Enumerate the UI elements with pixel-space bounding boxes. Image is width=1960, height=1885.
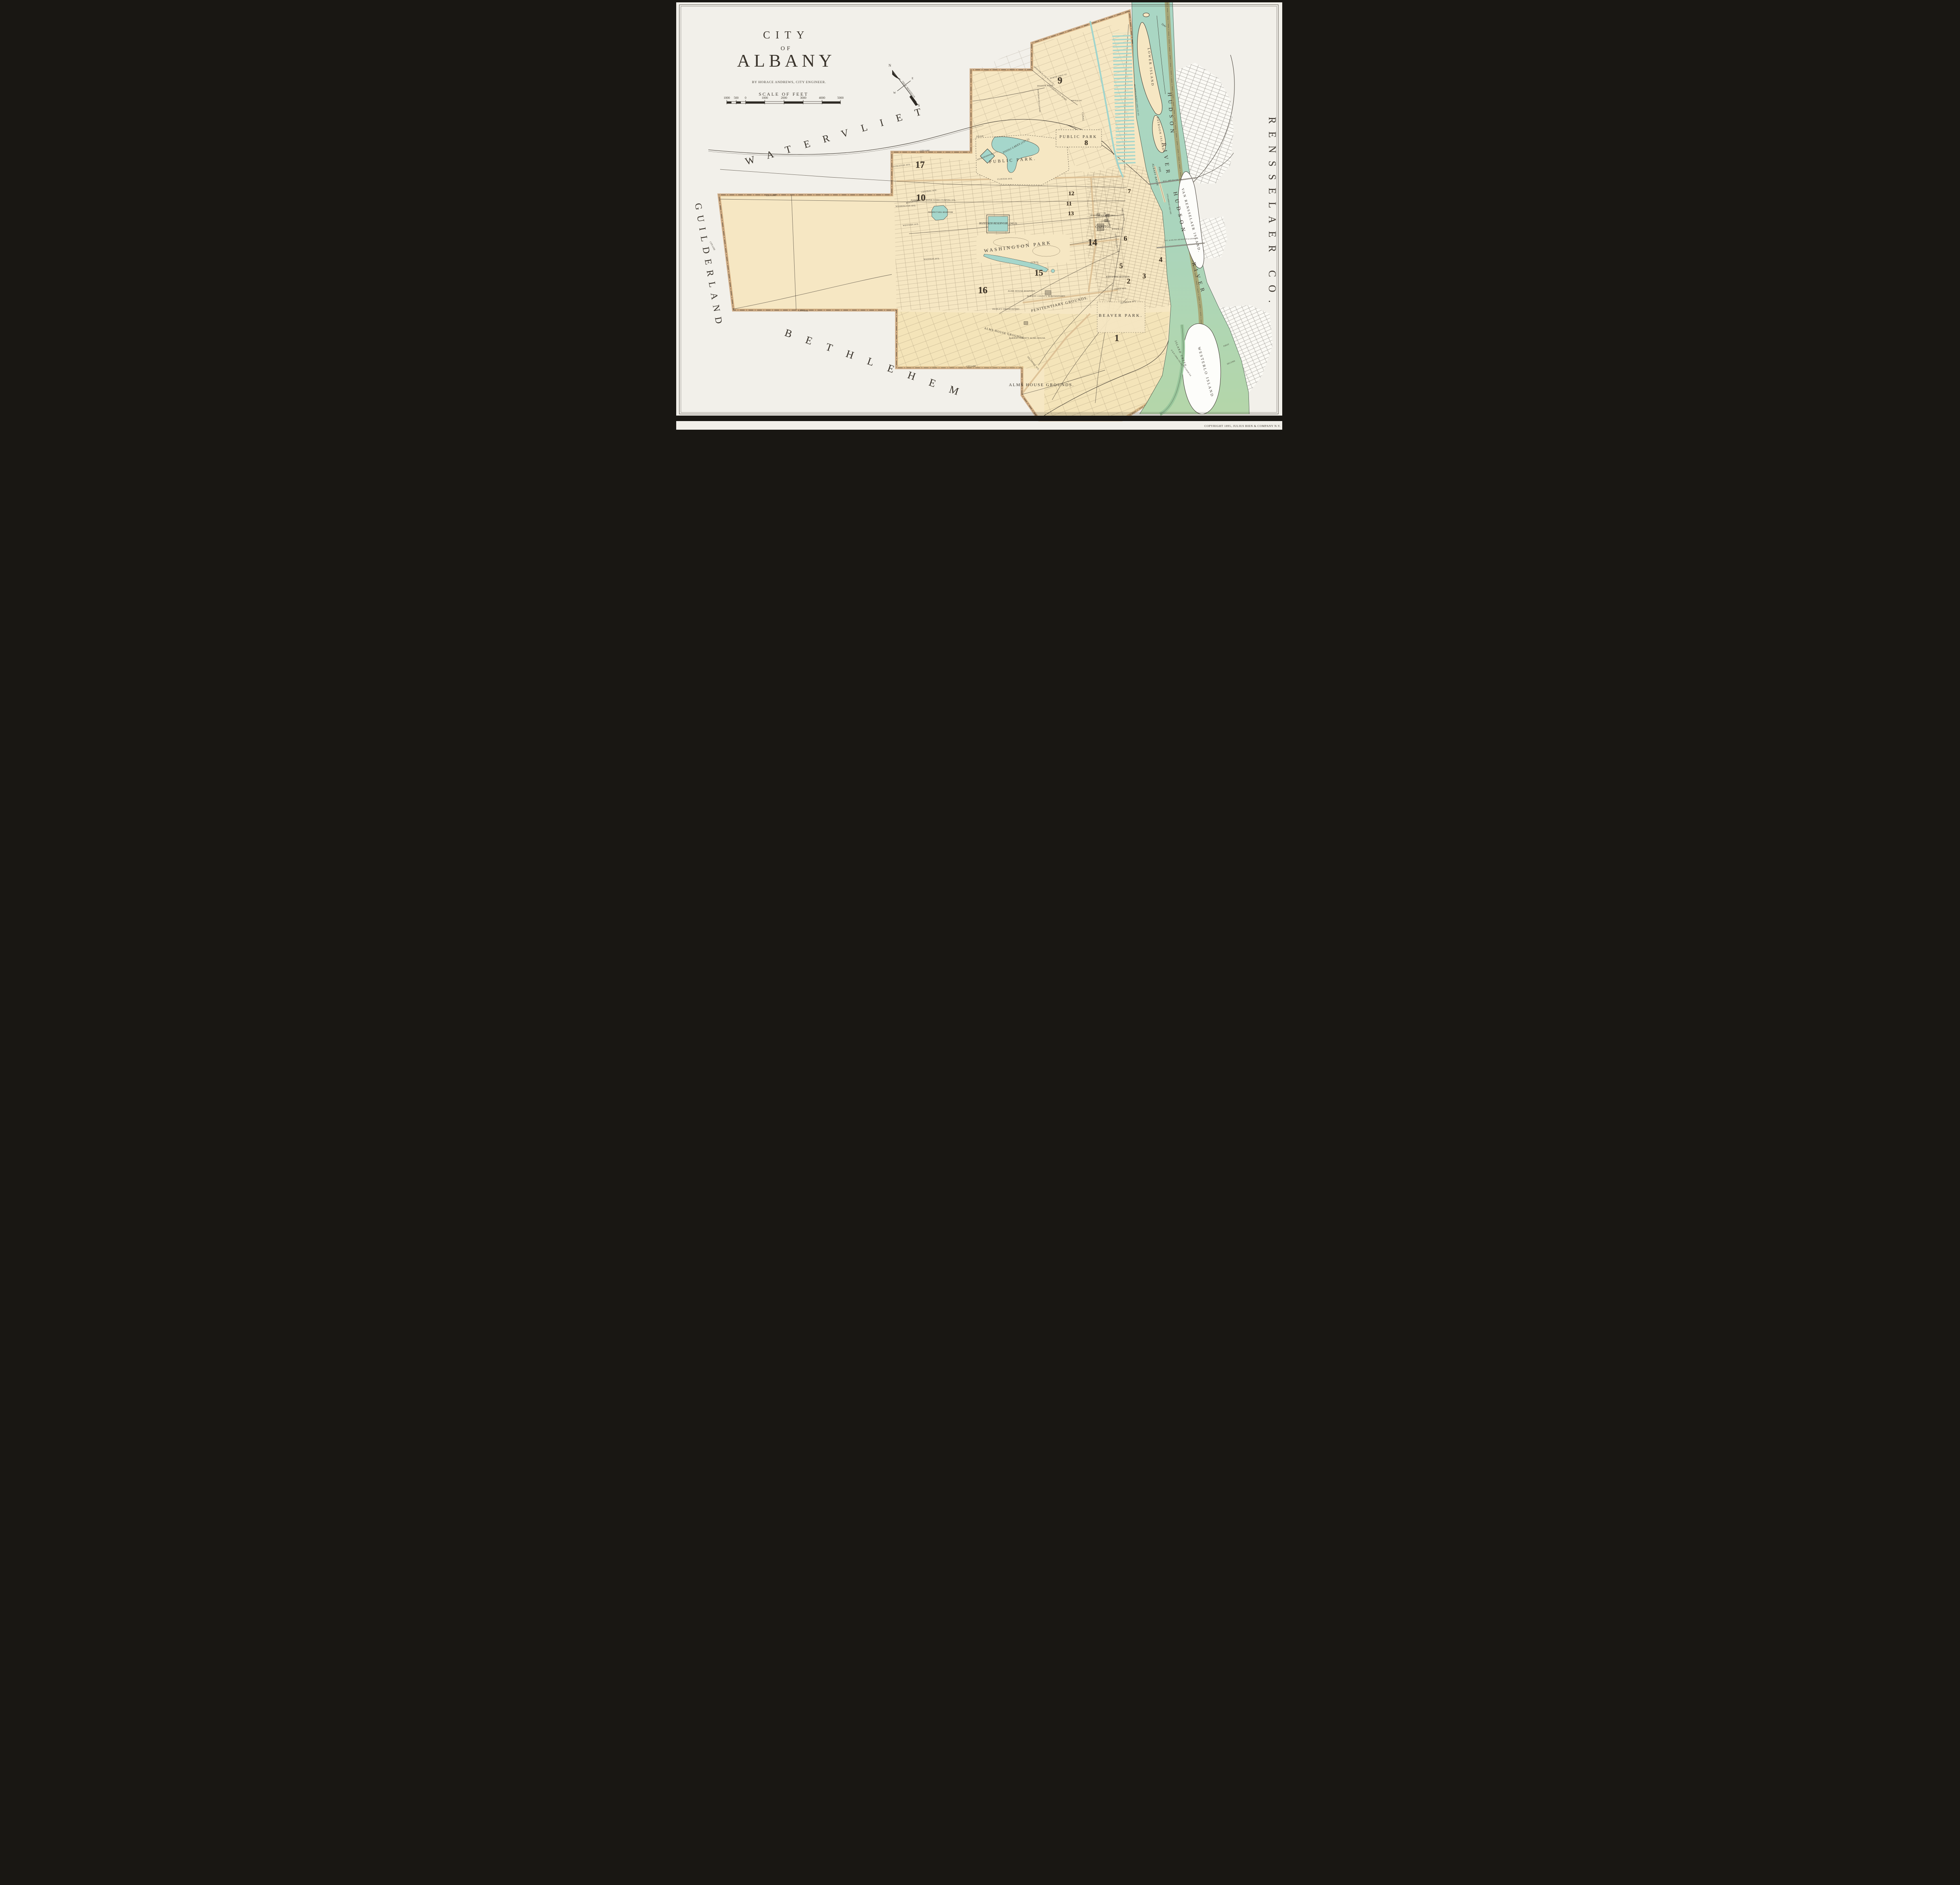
scale-tick-3: 1000 bbox=[762, 96, 768, 100]
ward-number-5: 5 bbox=[1119, 262, 1123, 270]
frame-left bbox=[674, 0, 676, 430]
compass-n: N bbox=[888, 64, 891, 67]
scale-tick-4: 2000 bbox=[781, 96, 787, 100]
small-islet bbox=[1143, 13, 1149, 17]
title-albany: ALBANY bbox=[737, 51, 836, 71]
compass-w: W bbox=[893, 91, 896, 94]
label-bleecker-reservoir: BLEECKER RESERVOIR. (242.5) bbox=[979, 222, 1017, 225]
label-alms-house-hospital: ALMS HOUSE HOSPITAL. bbox=[1008, 290, 1036, 292]
label-prospect-hill-reservoir: PROSPECT HILL RESERVOIR bbox=[927, 212, 953, 214]
label-alms-house-grounds: ALMS HOUSE GROUNDS. bbox=[1009, 383, 1074, 387]
copyright-line: COPYRIGHT 1895, JULIUS BIEN & COMPANY N.… bbox=[1204, 424, 1281, 428]
ward-number-9: 9 bbox=[1058, 76, 1062, 86]
ward-number-16: 16 bbox=[978, 285, 987, 296]
label-public-park-north: PUBLIC PARK bbox=[1059, 135, 1097, 139]
washington-park-pond bbox=[1051, 269, 1054, 273]
street-state-st: STATE ST. bbox=[1112, 228, 1124, 231]
alms-house-building bbox=[1024, 321, 1028, 325]
frame-bottom bbox=[674, 416, 1287, 421]
ward-number-13: 13 bbox=[1068, 211, 1074, 217]
ward-number-12: 12 bbox=[1068, 191, 1074, 197]
ward-number-3: 3 bbox=[1142, 272, 1146, 280]
city-line-5: CITY LINE bbox=[920, 150, 930, 153]
label-albany-county-penitentiary: ALBANY COUNTY PENITENTIARY. bbox=[1027, 295, 1065, 298]
ward-number-10: 10 bbox=[916, 193, 926, 203]
scale-tick-6: 4000 bbox=[819, 96, 825, 100]
ward-number-7: 7 bbox=[1128, 188, 1131, 194]
compass-e: E bbox=[911, 77, 913, 80]
ward-number-8: 8 bbox=[1084, 139, 1088, 147]
scale-tick-2: 0 bbox=[745, 96, 746, 100]
albany-map: CITYOFALBANYBY HORACE ANDREWS, CITY ENGI… bbox=[674, 0, 1287, 430]
ward-number-11: 11 bbox=[1066, 201, 1071, 207]
scale-tick-0: 1000 bbox=[724, 96, 730, 100]
frame-right bbox=[1282, 0, 1287, 430]
ward-number-14: 14 bbox=[1088, 238, 1097, 248]
label-rensselaer-co: RENSSELAER CO. bbox=[1267, 117, 1278, 311]
scale-seg-e bbox=[822, 102, 840, 104]
map-page: CITYOFALBANYBY HORACE ANDREWS, CITY ENGI… bbox=[674, 0, 1287, 430]
label-state-hall: STATE HALL bbox=[1105, 215, 1115, 217]
scale-tick-7: 5000 bbox=[837, 96, 844, 100]
title-city: CITY bbox=[763, 29, 809, 41]
ward-number-4: 4 bbox=[1159, 256, 1162, 263]
ward-number-1: 1 bbox=[1114, 333, 1119, 343]
label-executive-mansion: EXECUTIVE MANSION. bbox=[1105, 276, 1130, 278]
city-line-4: CITY LINE bbox=[966, 365, 976, 368]
ward-number-15: 15 bbox=[1034, 268, 1043, 278]
penitentiary-building bbox=[1045, 291, 1051, 295]
ward-number-17: 17 bbox=[915, 160, 925, 170]
ward-number-2: 2 bbox=[1127, 277, 1130, 285]
label-washington-park-lake: (178.5) bbox=[1031, 261, 1038, 264]
city-line-1: CITY LINE bbox=[766, 194, 776, 197]
scale-seg-b bbox=[736, 102, 741, 104]
scale-tick-5: 3000 bbox=[800, 96, 806, 100]
scale-tick-1: 500 bbox=[734, 96, 739, 100]
title-byline: BY HORACE ANDREWS, CITY ENGINEER. bbox=[752, 80, 826, 84]
rr-hr-rr: H.R. R.R. bbox=[976, 136, 984, 138]
street-bridge-st: BRIDGE ST. bbox=[1071, 100, 1082, 102]
city-line-3: CITY LINE bbox=[798, 310, 808, 312]
frame-top bbox=[674, 0, 1287, 2]
scale-seg-a bbox=[727, 102, 731, 104]
label-dudley-observatory: DUDLEY OBSERVATORY. bbox=[992, 308, 1020, 311]
scale-seg-c bbox=[746, 102, 765, 104]
scale-seg-d bbox=[784, 102, 803, 104]
ward-number-6: 6 bbox=[1123, 234, 1127, 242]
label-albany-county-alms-house: ALBANY COUNTY ALMS HOUSE. bbox=[1009, 337, 1045, 340]
label-beaver-park: BEAVER PARK. bbox=[1098, 313, 1142, 318]
